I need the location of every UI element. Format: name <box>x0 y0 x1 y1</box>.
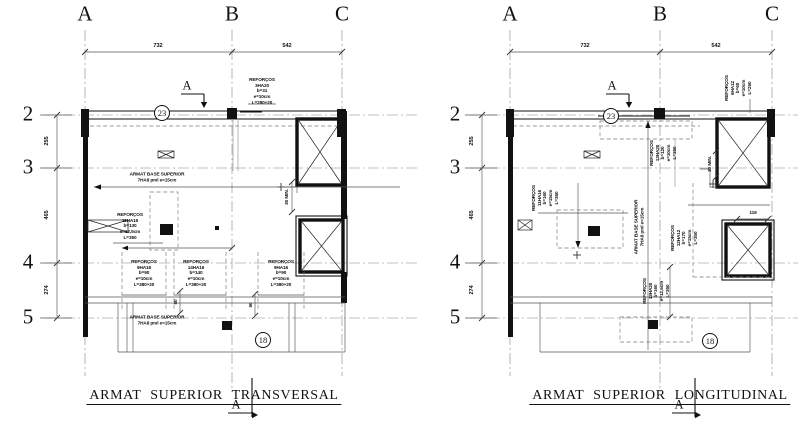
right-dim-274: 274 <box>469 285 475 294</box>
left-base-superior-bottom-note: ARMAT BASE SUPERIOR 7HA8 pml e=15cm <box>130 314 185 325</box>
right-reinf-bottom-note: REFORÇOS 13HA20 b=160 e=12,5cm L=350 <box>642 278 670 304</box>
right-30min-label: 30 MIN. <box>707 156 713 172</box>
left-grid-row-4: 4 <box>23 250 34 275</box>
right-119-dim <box>688 205 771 222</box>
right-grid-col-a: A <box>502 2 517 27</box>
left-dim-465: 465 <box>44 210 50 219</box>
right-dim-732: 732 <box>580 43 589 49</box>
right-reinf-c-mid-note: REFORÇOS 12HA12 b=170 e=15cm L=300 <box>670 225 698 251</box>
left-dim-255: 255 <box>44 136 50 145</box>
left-reinf-center-note: REFORÇOS 11HA16 b=130 e=12,5cm L=350 <box>117 212 143 240</box>
left-section-markers <box>181 94 258 418</box>
right-grid-row-2: 2 <box>450 102 461 127</box>
left-plan-title: ARMAT SUPERIOR TRANSVERSAL <box>86 386 341 404</box>
left-grid-row-2: 2 <box>23 102 34 127</box>
left-grid-row-5: 5 <box>23 305 34 330</box>
left-dim-274: 274 <box>44 285 50 294</box>
left-grid-col-a: A <box>77 2 92 27</box>
left-reinf-bottom-note-2: REFORÇOS 14HA16 b=140 e=10cm L=380+20 <box>183 259 209 287</box>
right-dim-542: 542 <box>711 43 720 49</box>
left-section-a-top: A <box>182 79 191 94</box>
left-detail-bubble-23: 23 <box>154 105 170 121</box>
left-reinf-bottom-note-3: REFORÇOS 9HA16 b=90 e=10cm L=380+20 <box>268 259 294 287</box>
left-grid-col-c: C <box>335 2 349 27</box>
right-grid-row-5: 5 <box>450 305 461 330</box>
right-grid-col-b: B <box>653 2 667 27</box>
right-lower-shaft <box>722 220 774 280</box>
right-dim-119: 119 <box>749 210 756 216</box>
right-base-superior-note: ARMAT BASE SUPERIOR 7HA8 pml e=15cm <box>633 200 644 255</box>
left-30min-label: 30 MIN. <box>284 189 290 205</box>
right-dim-255: 255 <box>469 136 475 145</box>
left-lower-shaft <box>296 216 347 276</box>
left-upper-shaft <box>277 119 343 193</box>
right-detail-bubble-23: 23 <box>603 108 619 124</box>
left-grid-col-b: B <box>225 2 239 27</box>
right-reinf-c-top-note: REFORÇOS 6HA12 b=60 e=10cm L=250 <box>724 75 752 101</box>
left-base-superior-mid-note: ARMAT BASE SUPERIOR 7HA8 pml e=15cm <box>130 171 185 182</box>
drawing-sheet: A B C 732 542 2 3 4 5 255 465 274 A 23 R… <box>0 0 800 433</box>
left-plan-title-text: ARMAT SUPERIOR TRANSVERSAL <box>86 388 341 405</box>
right-plan-title: ARMAT SUPERIOR LONGITUDINAL <box>529 386 790 404</box>
right-reinf-center-note: REFORÇOS 11HA16 b=160 e=15cm L=350 <box>531 185 559 211</box>
left-dim-50-a: 50 <box>173 299 179 304</box>
right-section-a-top: A <box>607 79 616 94</box>
left-detail-bubble-18: 18 <box>255 332 271 348</box>
right-dim-465: 465 <box>469 210 475 219</box>
right-plan-title-text: ARMAT SUPERIOR LONGITUDINAL <box>529 388 790 405</box>
right-grid-col-c: C <box>765 2 779 27</box>
left-base-superior-leader <box>94 184 400 189</box>
right-reinf-b-top-note: REFORÇOS 13HA20 b=120 e=10cm L=350 <box>649 140 677 166</box>
left-grid-lines <box>45 30 418 392</box>
right-grid-row-4: 4 <box>450 250 461 275</box>
left-reinf-top-note: REFORÇOS 3HA20 b=31 e=10cm L=280+20 <box>249 77 275 105</box>
right-detail-bubble-18: 18 <box>702 333 718 349</box>
left-dim-50-b: 50 <box>248 302 254 307</box>
left-30min-dim <box>289 179 295 215</box>
left-section-a-bottom: A <box>231 398 240 413</box>
right-grid-row-3: 3 <box>450 155 461 180</box>
left-reinf-bottom-note-1: REFORÇOS 9HA16 b=90 e=10cm L=380+20 <box>131 259 157 287</box>
right-section-a-bottom: A <box>674 398 683 413</box>
left-bottom-slab <box>85 297 345 352</box>
left-dim-542: 542 <box>282 43 291 49</box>
left-grid-row-3: 3 <box>23 155 34 180</box>
left-dim-732: 732 <box>153 43 162 49</box>
right-upper-shaft <box>700 119 769 188</box>
